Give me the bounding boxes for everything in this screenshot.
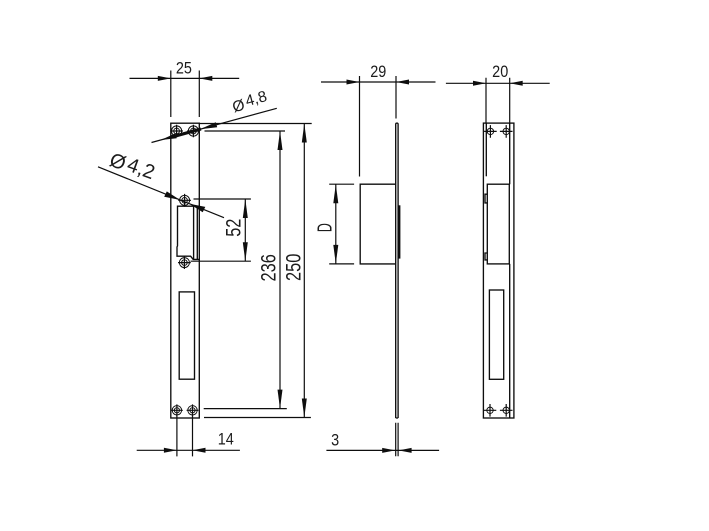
svg-text:D: D	[314, 223, 337, 232]
svg-text:3: 3	[331, 431, 339, 449]
svg-text:25: 25	[176, 59, 192, 77]
svg-text:14: 14	[218, 430, 234, 448]
svg-text:29: 29	[370, 63, 386, 81]
svg-text:Ø4,2: Ø4,2	[107, 148, 158, 186]
svg-text:20: 20	[492, 63, 508, 81]
svg-text:236: 236	[257, 254, 280, 281]
svg-text:52: 52	[222, 219, 245, 237]
svg-text:250: 250	[281, 254, 304, 281]
